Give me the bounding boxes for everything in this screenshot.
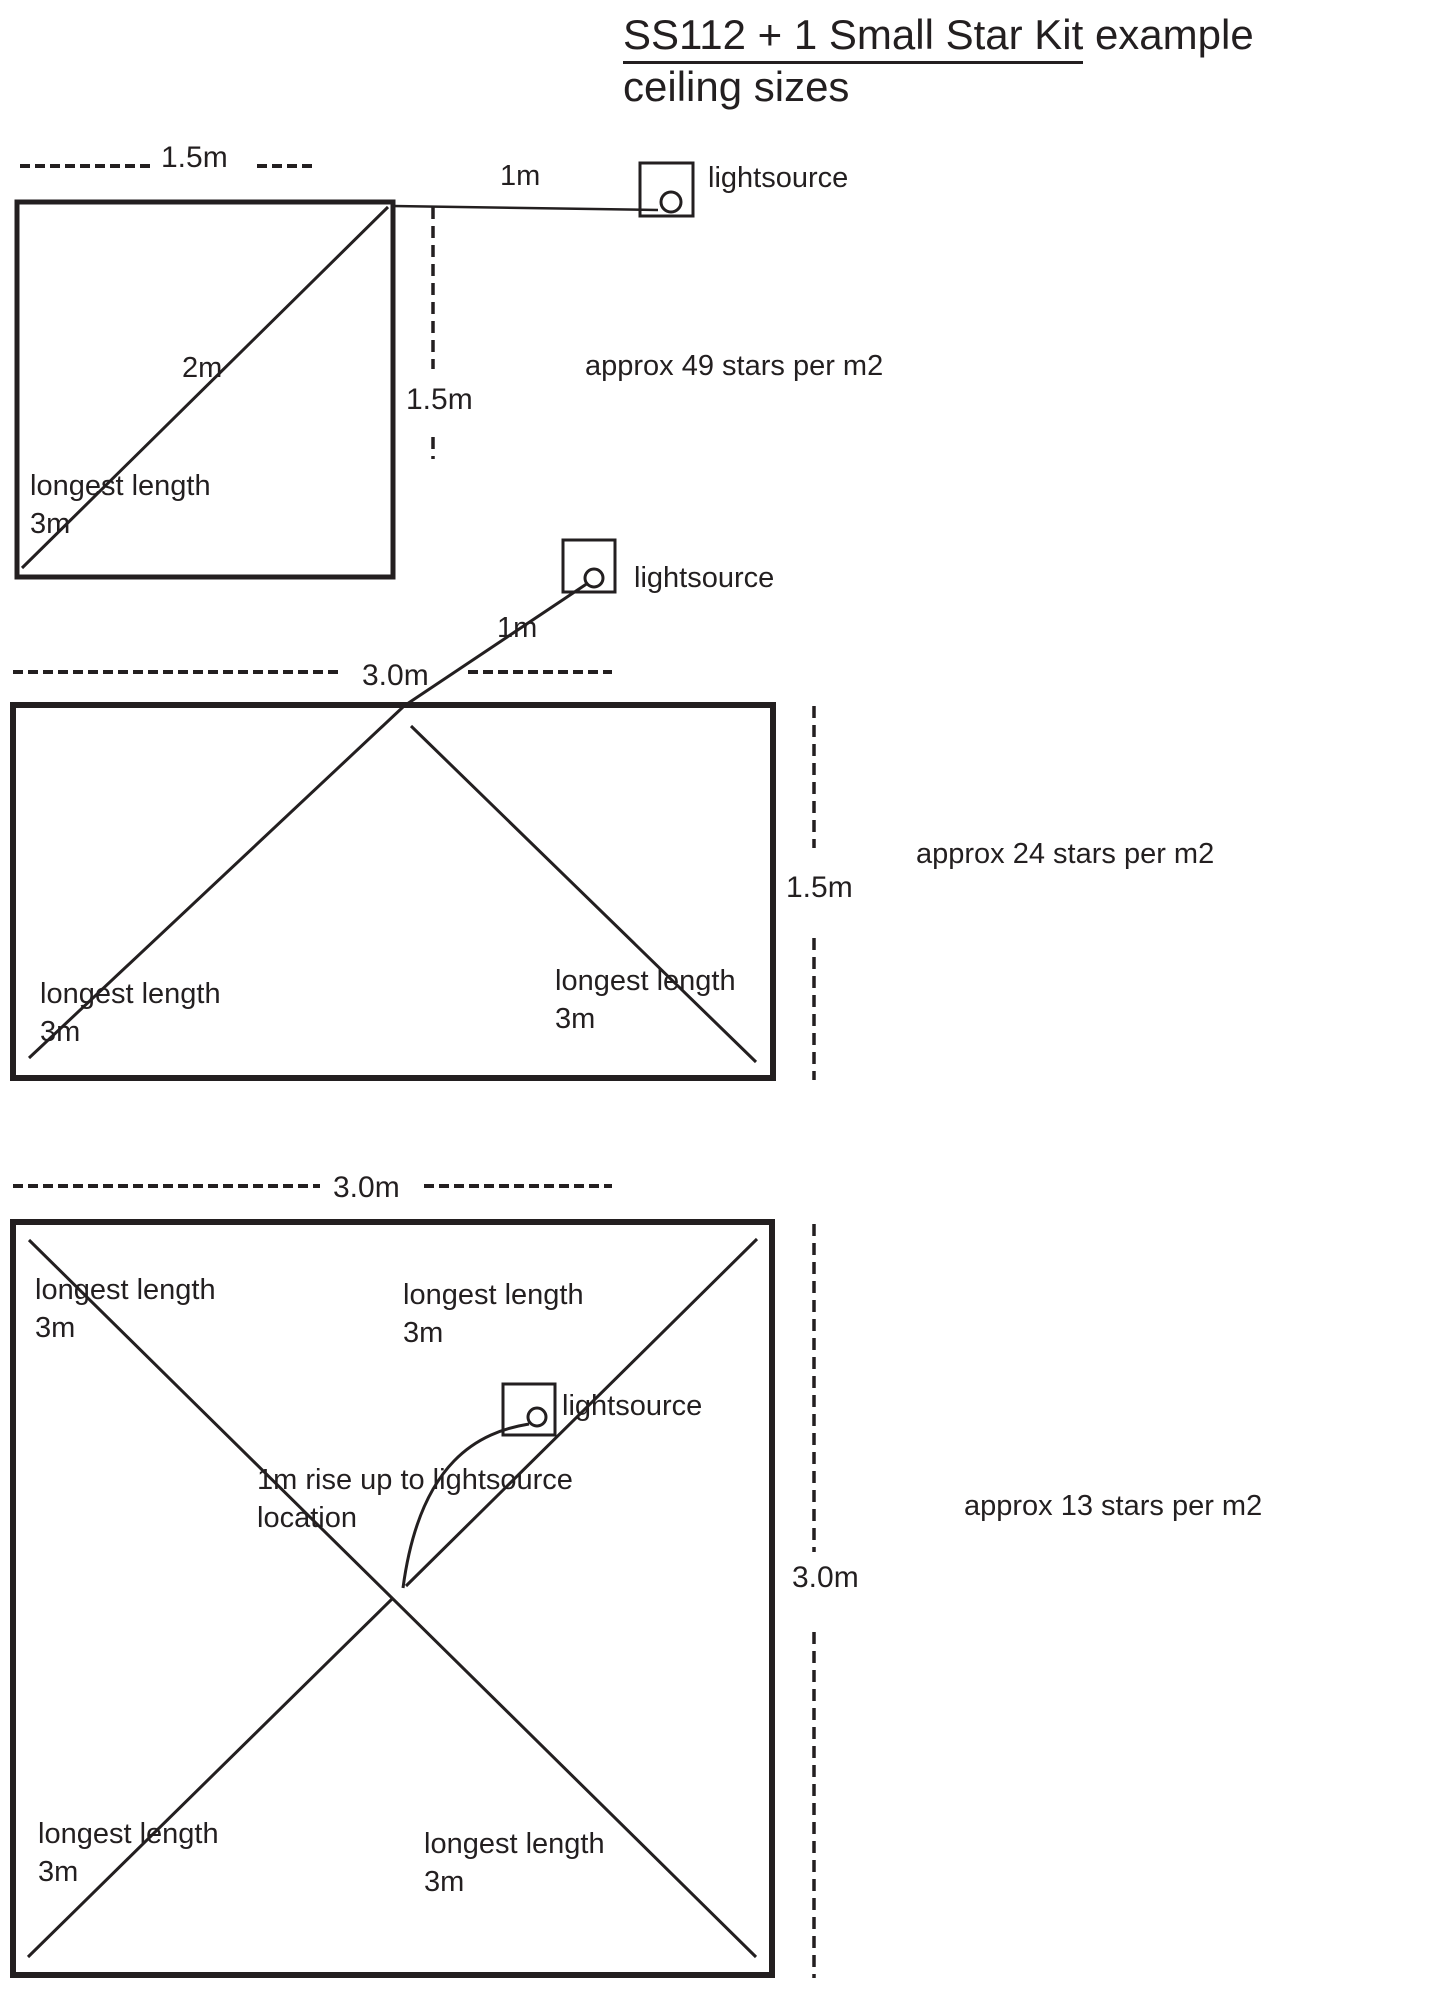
page-title-line2: ceiling sizes [623, 62, 849, 112]
d1-height-label: 1.5m [406, 380, 473, 419]
d2-height-label: 1.5m [786, 868, 853, 907]
d3-bottom-left-longest-length-label: longest length 3m [38, 1816, 219, 1891]
d1-diagonal-label: 2m [182, 350, 222, 388]
d2-left-longest-length-label: longest length 3m [40, 976, 221, 1051]
page-title-underlined: SS112 + 1 Small Star Kit [623, 11, 1083, 64]
d3-rise-label: 1m rise up to lightsource location [257, 1462, 573, 1537]
d1-lightsource-lens-icon [661, 192, 681, 212]
d2-right-longest-length-label: longest length 3m [555, 963, 736, 1038]
d3-sw-diagonal-segment [28, 1599, 392, 1957]
d3-top-left-longest-length-label: longest length 3m [35, 1272, 216, 1347]
d1-lightsource-distance-label: 1m [500, 158, 540, 196]
d1-width-label: 1.5m [161, 138, 228, 177]
d3-bottom-right-longest-length-label: longest length 3m [424, 1826, 605, 1901]
page-title-rest: example [1083, 11, 1253, 58]
d3-width-label: 3.0m [333, 1168, 400, 1207]
d3-density-label: approx 13 stars per m2 [964, 1488, 1262, 1526]
d2-width-label: 3.0m [362, 656, 429, 695]
d2-lightsource-distance-label: 1m [497, 610, 537, 648]
d1-lightsource-label: lightsource [708, 160, 848, 198]
d3-lightsource-label: lightsource [562, 1388, 702, 1426]
d2-density-label: approx 24 stars per m2 [916, 836, 1214, 874]
d1-density-label: approx 49 stars per m2 [585, 348, 883, 386]
d1-longest-length-label: longest length 3m [30, 468, 211, 543]
d3-lightsource-lens-icon [528, 1408, 546, 1426]
d3-top-right-longest-length-label: longest length 3m [403, 1277, 584, 1352]
d3-height-label: 3.0m [792, 1558, 859, 1597]
d2-lightsource-label: lightsource [634, 560, 774, 598]
d2-lightsource-connector-line [404, 583, 588, 706]
page-title: SS112 + 1 Small Star Kit example [623, 10, 1254, 60]
ceiling-sizes-diagram-page: SS112 + 1 Small Star Kit example ceiling… [0, 0, 1445, 1989]
